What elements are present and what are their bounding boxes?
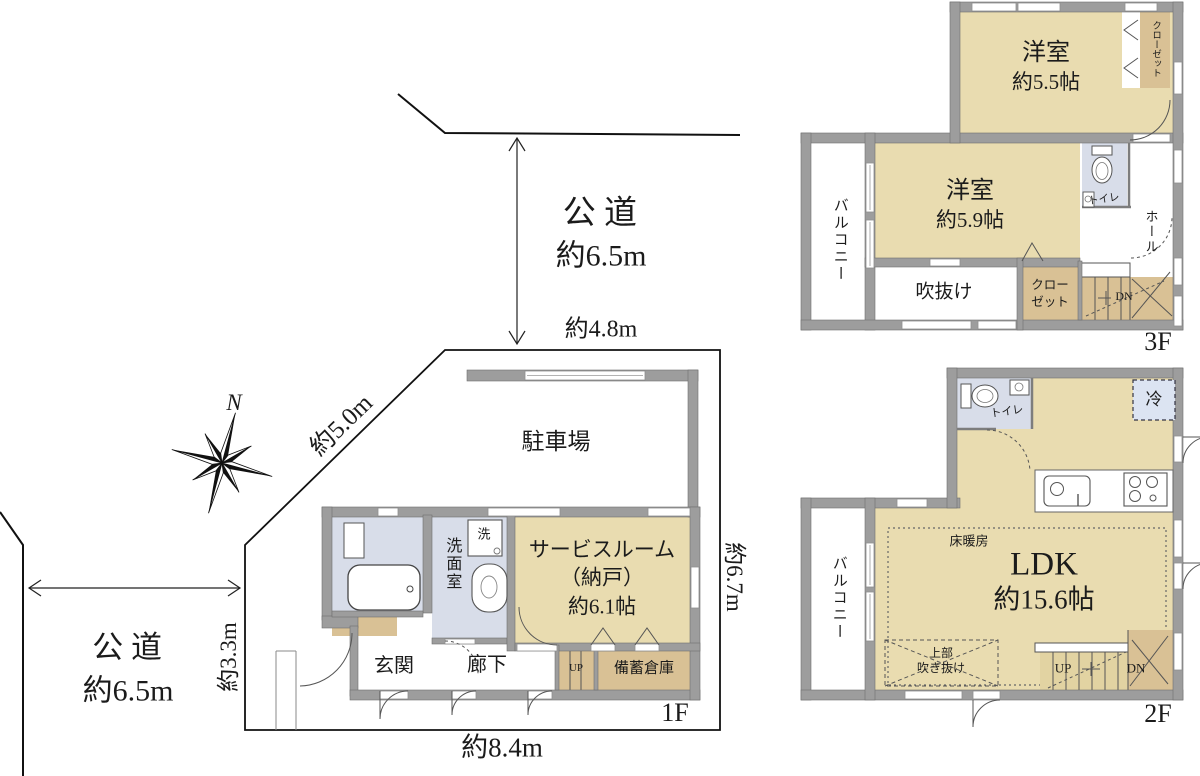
- room-service: サービスルーム （納戸） 約6.1帖: [529, 535, 675, 620]
- road-left-width: 約6.5m: [83, 672, 174, 711]
- floor3-label: 3F: [1144, 325, 1171, 359]
- dim-top: 約4.8m: [565, 314, 638, 345]
- stairs-dn-2f-label: DN: [1127, 661, 1146, 678]
- room-ldk: LDK 約15.6帖: [993, 547, 1094, 616]
- room-bedroom-55: 洋室 約5.5帖: [1012, 38, 1080, 96]
- washbasin-icon: [472, 564, 507, 612]
- road-top-width: 約6.5m: [556, 237, 647, 276]
- floor-plan-page: 公道 約6.5m 約4.8m 公道 約6.5m 約3.3m 約5.0m 約6.7…: [0, 0, 1200, 776]
- floor1-label: 1F: [661, 696, 688, 730]
- fridge-label: 冷: [1146, 389, 1163, 411]
- dim-left: 約3.3m: [214, 622, 244, 692]
- stairs-up-1f-label: UP: [569, 661, 583, 675]
- floor2-label: 2F: [1144, 697, 1171, 731]
- road-top-label: 公道: [563, 193, 646, 236]
- dim-right: 約6.7m: [719, 542, 749, 612]
- floor-plan-drawing: [0, 0, 1200, 776]
- room-balcony-2f: バルコニー: [828, 556, 848, 641]
- washer-label: 洗: [477, 527, 490, 544]
- room-balcony-3f: バルコニー: [829, 198, 849, 283]
- room-corridor: 廊下: [467, 652, 507, 678]
- closet-lower-label: クロー ゼット: [1031, 277, 1069, 311]
- room-parking: 駐車場: [522, 427, 591, 457]
- stairs-dn-3f-label: DN: [1115, 289, 1132, 305]
- dim-bottom: 約8.4m: [461, 730, 543, 765]
- floor-heating-label: 床暖房: [949, 534, 988, 551]
- kitchen-icons: [1035, 470, 1173, 512]
- road-left-label: 公道: [92, 628, 170, 668]
- room-washroom: 洗面室: [441, 537, 462, 591]
- void-above-label: 上部 吹き抜け: [917, 646, 965, 676]
- north-label: N: [226, 388, 241, 418]
- closet-upper-label: クローゼット: [1149, 21, 1161, 78]
- room-hall: ホール: [1142, 210, 1159, 255]
- entry-approach: [276, 651, 296, 730]
- stairs-up-2f-label: UP: [1055, 661, 1072, 678]
- room-void-3f: 吹抜け: [915, 281, 972, 306]
- room-bedroom-59: 洋室 約5.9帖: [936, 176, 1004, 234]
- compass-rose-icon: [172, 413, 272, 513]
- room-storage: 備蓄倉庫: [614, 659, 674, 679]
- room-entrance: 玄関: [374, 653, 414, 679]
